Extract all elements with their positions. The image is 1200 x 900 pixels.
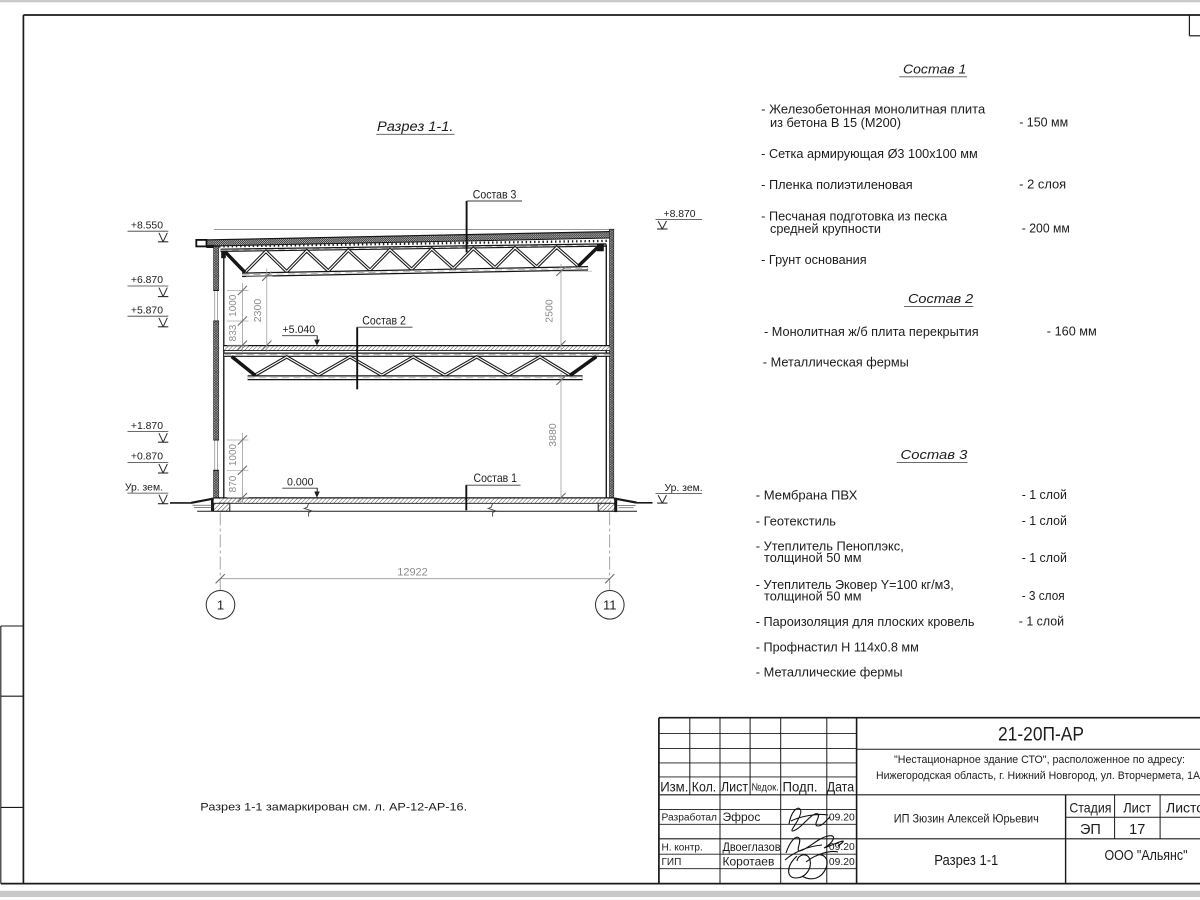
svg-text:17: 17 — [1129, 822, 1145, 838]
svg-text:Подп.: Подп. — [783, 780, 818, 796]
svg-text:- 150 мм: - 150 мм — [1019, 115, 1068, 129]
svg-text:№док.: №док. — [752, 782, 779, 794]
svg-text:- Металлическая фермы: - Металлическая фермы — [763, 356, 909, 370]
svg-text:870: 870 — [228, 475, 239, 492]
svg-text:- Мембрана ПВХ: - Мембрана ПВХ — [756, 489, 858, 503]
svg-text:Разрез 1-1 замаркирован см. л.: Разрез 1-1 замаркирован см. л. АР-12-АР-… — [200, 801, 467, 813]
svg-text:+8.870: +8.870 — [664, 209, 696, 220]
svg-text:+0.870: +0.870 — [131, 452, 163, 463]
svg-text:Состав 3: Состав 3 — [473, 188, 517, 201]
svg-text:- 200 мм: - 200 мм — [1022, 221, 1070, 235]
svg-text:Состав 2: Состав 2 — [362, 315, 406, 328]
svg-text:3880: 3880 — [547, 423, 559, 447]
svg-text:Состав 1: Состав 1 — [474, 472, 518, 485]
svg-text:Дата: Дата — [827, 780, 854, 796]
svg-text:Состав 1: Состав 1 — [903, 61, 966, 76]
svg-text:1: 1 — [217, 598, 224, 613]
svg-text:+6.870: +6.870 — [131, 275, 163, 286]
svg-text:- 160 мм: - 160 мм — [1047, 325, 1097, 339]
svg-text:- Пленка полиэтиленовая: - Пленка полиэтиленовая — [761, 178, 912, 192]
svg-text:Лист: Лист — [721, 780, 749, 796]
svg-text:09.20: 09.20 — [829, 812, 855, 823]
svg-text:1000: 1000 — [228, 294, 239, 317]
svg-text:Н. контр.: Н. контр. — [662, 842, 703, 853]
svg-text:833: 833 — [228, 324, 239, 341]
svg-text:- Металлические фермы: - Металлические фермы — [756, 665, 903, 679]
svg-text:- Профнастил Н 114х0.8 мм: - Профнастил Н 114х0.8 мм — [756, 640, 919, 654]
svg-text:ИП Зюзин Алексей Юрьевич: ИП Зюзин Алексей Юрьевич — [894, 811, 1039, 825]
svg-text:2500: 2500 — [544, 299, 556, 323]
svg-text:- 1 слой: - 1 слой — [1019, 615, 1064, 629]
svg-text:1000: 1000 — [228, 443, 239, 466]
svg-text:+8.550: +8.550 — [131, 220, 163, 231]
svg-text:- 1 слой: - 1 слой — [1022, 551, 1067, 565]
svg-text:- 1 слой: - 1 слой — [1022, 514, 1067, 528]
svg-text:Нижегородская область, г. Нижн: Нижегородская область, г. Нижний Новгоро… — [876, 770, 1200, 782]
svg-text:толщиной 50 мм: толщиной 50 мм — [764, 589, 862, 603]
svg-text:"Нестационарное здание СТО", р: "Нестационарное здание СТО", расположенн… — [894, 754, 1185, 766]
svg-text:12922: 12922 — [397, 566, 428, 578]
svg-text:Изм.: Изм. — [660, 780, 688, 796]
svg-text:Эфрос: Эфрос — [723, 810, 761, 824]
svg-text:Коротаев: Коротаев — [723, 855, 775, 869]
svg-text:11: 11 — [603, 598, 617, 613]
svg-text:Разрез 1-1: Разрез 1-1 — [934, 853, 998, 869]
svg-text:ГИП: ГИП — [662, 857, 682, 868]
svg-text:Двоеглазов: Двоеглазов — [723, 840, 781, 854]
svg-text:- Сетка армирующая Ø3 100х100: - Сетка армирующая Ø3 100х100 мм — [761, 147, 978, 161]
svg-text:Стадия: Стадия — [1069, 799, 1111, 815]
svg-text:- Грунт основания: - Грунт основания — [761, 253, 866, 267]
svg-text:09.20: 09.20 — [829, 857, 855, 868]
svg-text:+1.870: +1.870 — [131, 421, 163, 432]
svg-text:0.000: 0.000 — [287, 477, 314, 489]
svg-text:Ур. зем.: Ур. зем. — [665, 483, 703, 494]
svg-text:- Монолитная ж/б плита перекры: - Монолитная ж/б плита перекрытия — [764, 325, 979, 339]
svg-text:из бетона В 15 (М200): из бетона В 15 (М200) — [770, 116, 901, 130]
svg-text:Лист: Лист — [1123, 799, 1152, 815]
svg-text:Ур. зем.: Ур. зем. — [125, 482, 163, 493]
svg-text:21-20П-АР: 21-20П-АР — [998, 724, 1084, 746]
svg-text:ООО "Альянс": ООО "Альянс" — [1105, 848, 1188, 864]
svg-text:- 2 слоя: - 2 слоя — [1019, 178, 1066, 192]
svg-text:+5.870: +5.870 — [131, 305, 163, 316]
svg-text:Состав 3: Состав 3 — [901, 447, 968, 462]
svg-text:Разрез 1-1.: Разрез 1-1. — [377, 119, 454, 135]
svg-text:- Железобетонная монолитная п: - Железобетонная монолитная плита — [761, 103, 985, 117]
svg-text:ЭП: ЭП — [1080, 822, 1101, 838]
svg-text:- 1 слой: - 1 слой — [1022, 488, 1067, 502]
svg-text:- Пароизоляция для плоских кро: - Пароизоляция для плоских кровель — [756, 615, 975, 629]
svg-text:2300: 2300 — [252, 299, 264, 323]
svg-text:Разработал: Разработал — [662, 811, 718, 823]
svg-text:+5.040: +5.040 — [283, 324, 316, 336]
svg-text:средней крупности: средней крупности — [770, 222, 881, 236]
svg-text:толщиной 50 мм: толщиной 50 мм — [764, 551, 862, 565]
svg-text:Состав 2: Состав 2 — [908, 291, 973, 306]
svg-text:Листов: Листов — [1166, 799, 1200, 815]
svg-text:- 3 слоя: - 3 слоя — [1022, 589, 1065, 603]
svg-text:Кол.: Кол. — [692, 780, 717, 796]
svg-text:- Геотекстиль: - Геотекстиль — [756, 515, 836, 529]
